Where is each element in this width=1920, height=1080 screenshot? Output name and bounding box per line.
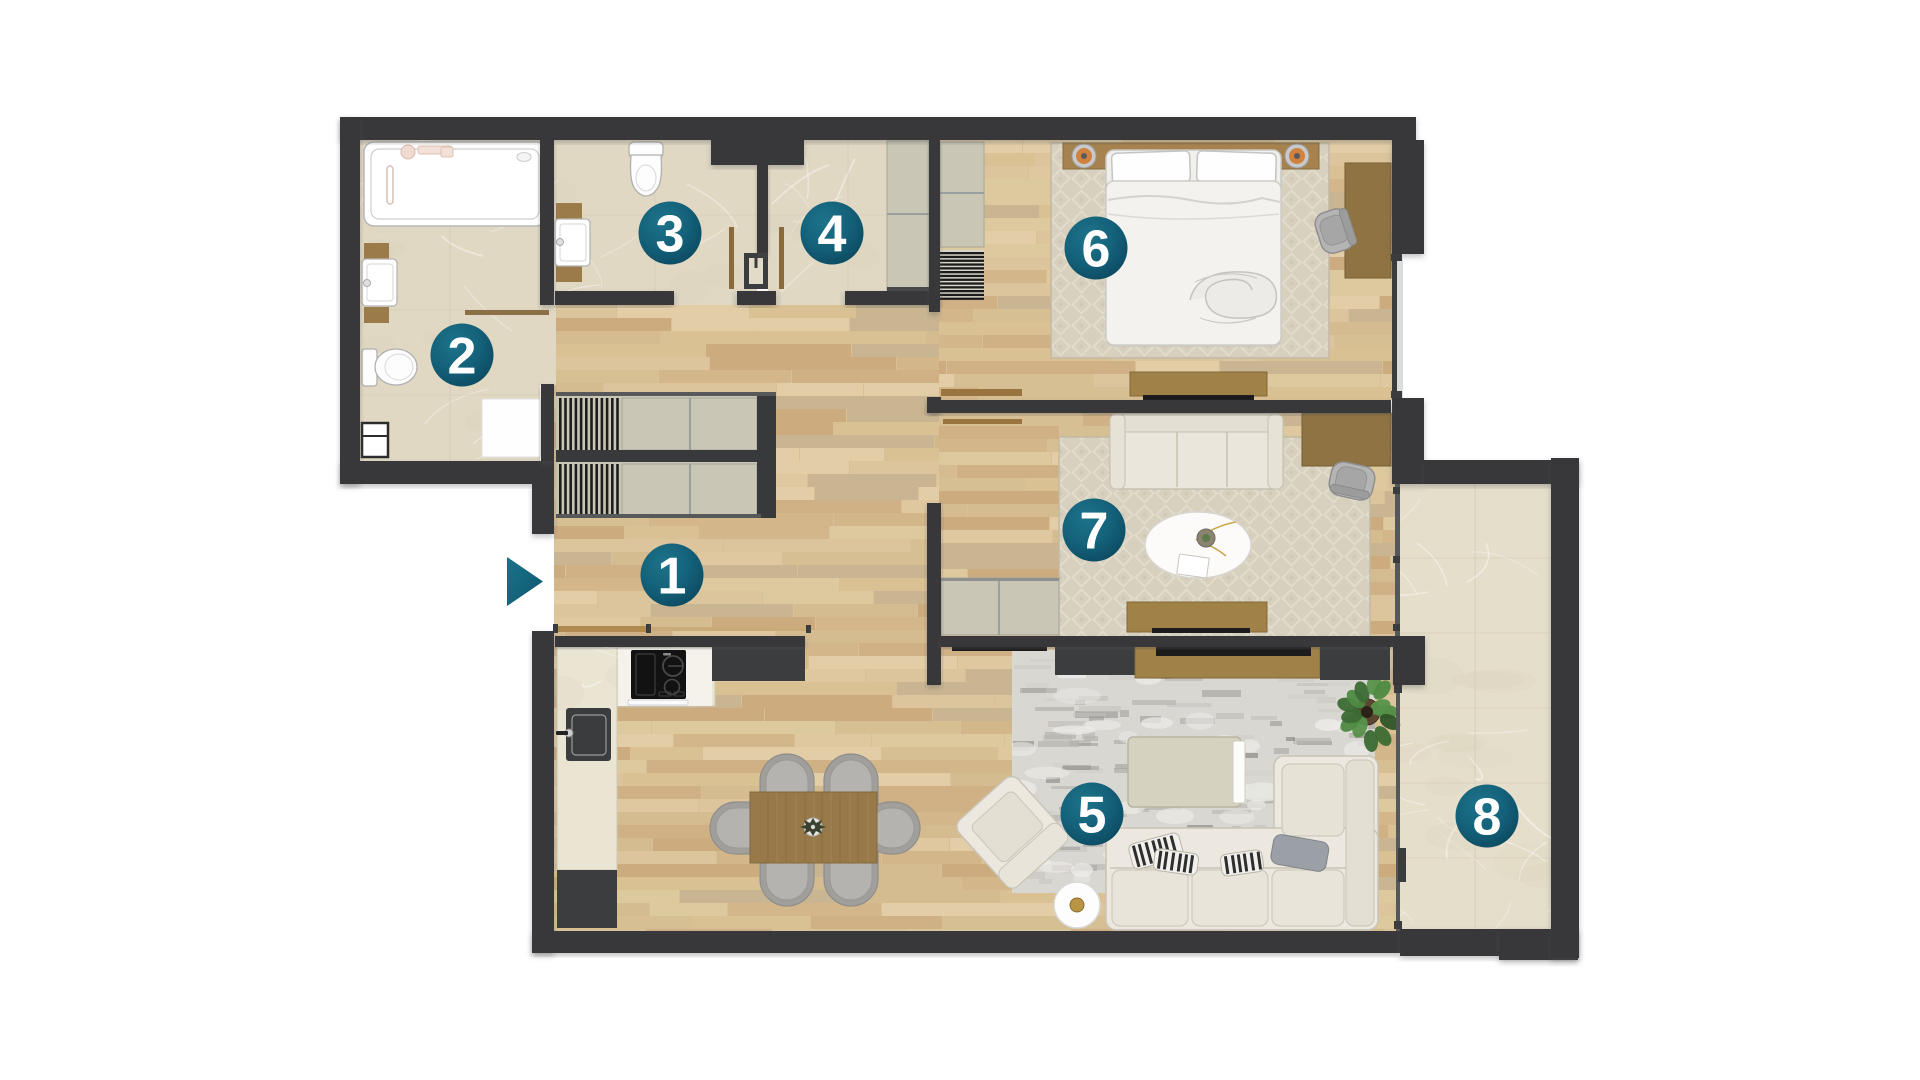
svg-text:1: 1 — [658, 548, 687, 606]
svg-text:4: 4 — [818, 206, 847, 264]
svg-text:2: 2 — [448, 328, 477, 386]
svg-text:5: 5 — [1078, 787, 1107, 845]
svg-text:7: 7 — [1080, 503, 1109, 561]
svg-text:3: 3 — [656, 206, 685, 264]
svg-text:8: 8 — [1473, 789, 1502, 847]
svg-text:6: 6 — [1082, 221, 1111, 279]
